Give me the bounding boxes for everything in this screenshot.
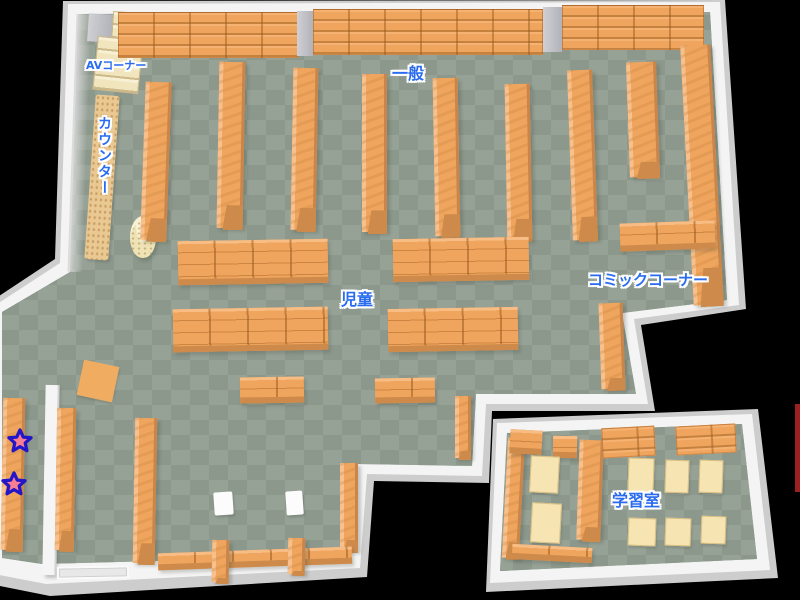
label-counter: カウンター [94, 116, 114, 196]
label-children: 児童 [341, 286, 373, 310]
label-av-corner: AVコーナー [86, 57, 146, 73]
library-floor-map: AVコーナー 一般 カウンター 児童 コミックコーナー 学習室 [0, 0, 800, 600]
label-study-room: 学習室 [612, 487, 660, 511]
label-general: 一般 [392, 60, 424, 84]
label-comic-corner: コミックコーナー [588, 269, 708, 290]
map-edge-red-strip [795, 404, 800, 492]
star-icon [1, 471, 27, 497]
star-icon [7, 428, 33, 454]
marker-layer [0, 0, 800, 600]
